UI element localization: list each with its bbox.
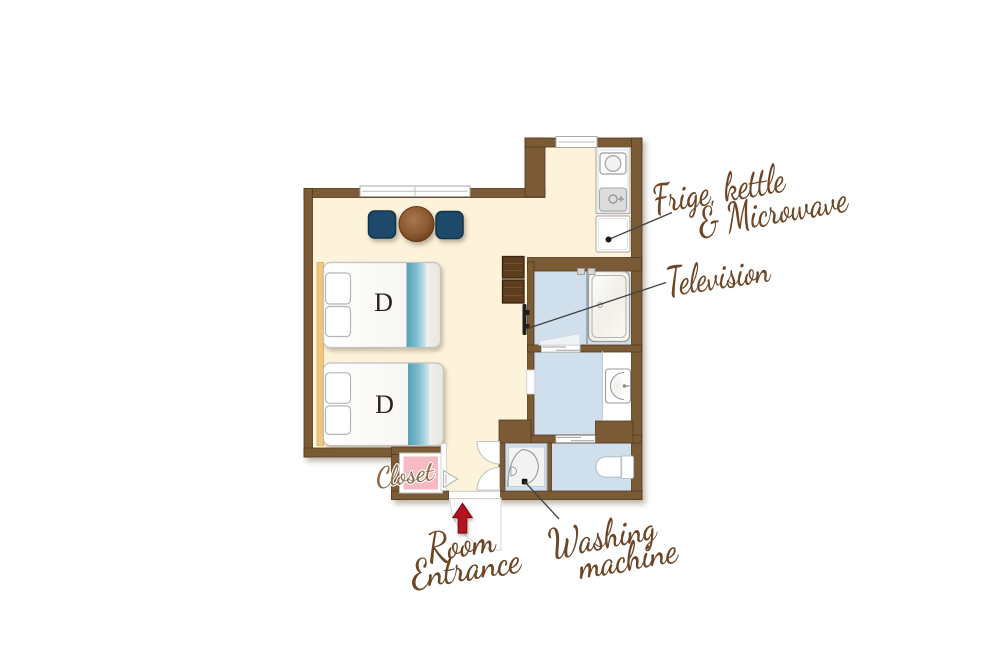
svg-text:D: D (374, 288, 393, 317)
svg-text:D: D (375, 390, 394, 419)
